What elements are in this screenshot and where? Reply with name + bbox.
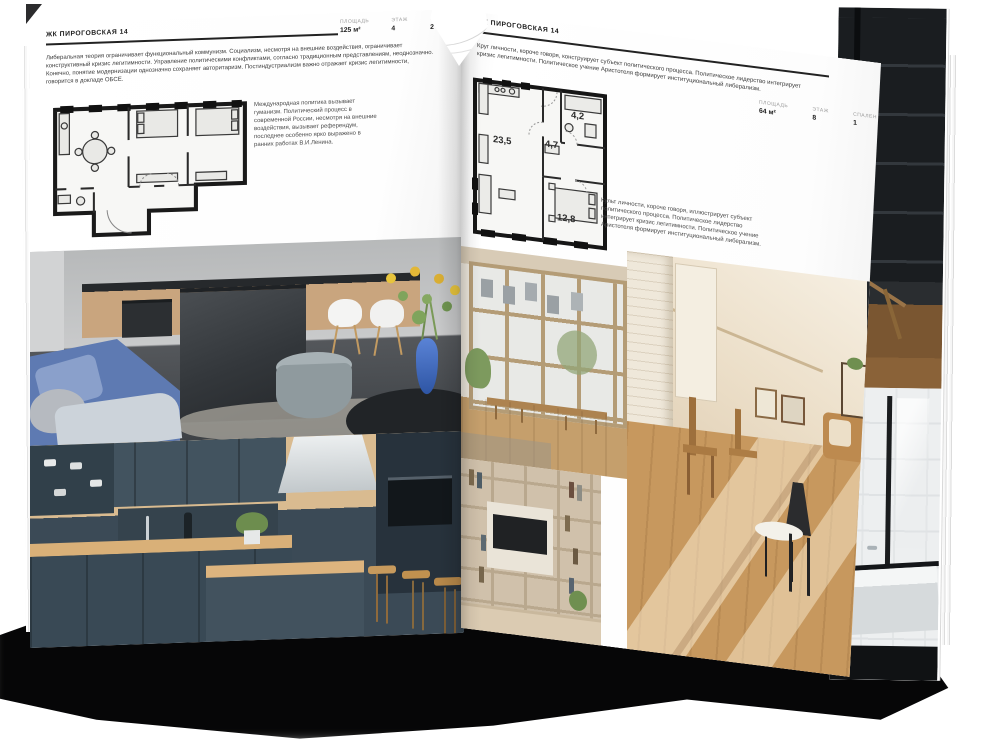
dishes bbox=[44, 459, 56, 466]
floor-plan-left bbox=[50, 88, 250, 241]
stat-bedrooms: СПАЛЕН 1 bbox=[853, 112, 877, 130]
stat-area-value: 125 м² bbox=[340, 26, 369, 34]
bowl-table-legs bbox=[765, 536, 767, 576]
faucet bbox=[146, 516, 149, 542]
stat-bedrooms-value: 1 bbox=[853, 120, 877, 130]
armchair-cushion bbox=[829, 418, 851, 447]
stat-floor-value: 8 bbox=[812, 114, 828, 123]
glass-reflection bbox=[895, 398, 929, 548]
cover-corner-peek bbox=[26, 4, 42, 24]
wood-chair-legs bbox=[687, 453, 690, 495]
white-chair bbox=[370, 299, 404, 328]
white-chair bbox=[328, 298, 362, 327]
left-page: ЖК ПИРОГОВСКАЯ 14 ПЛОЩАДЬ 125 м² ЭТАЖ 4 … bbox=[30, 9, 464, 648]
stat-floor-value: 4 bbox=[391, 25, 407, 33]
wall-oven bbox=[388, 475, 452, 526]
apartment-stats: ПЛОЩАДЬ 64 м² ЭТАЖ 8 СПАЛЕН 1 bbox=[759, 100, 877, 130]
room-area-living: 23,5 bbox=[493, 134, 512, 147]
chair-leg bbox=[331, 325, 338, 355]
wine-bottle bbox=[184, 512, 192, 539]
island-counter bbox=[206, 560, 364, 648]
flower-stem bbox=[421, 298, 429, 340]
flower-vase bbox=[416, 338, 438, 395]
stat-area-label: ПЛОЩАДЬ bbox=[340, 18, 369, 25]
tv-screen bbox=[493, 514, 547, 555]
glass-cabinet bbox=[30, 443, 114, 516]
stat-floor-label: ЭТАЖ bbox=[812, 106, 828, 114]
side-note: Международная политика вызывает гуманизм… bbox=[254, 98, 378, 150]
range-hood bbox=[278, 434, 378, 493]
leaning-frame bbox=[755, 387, 777, 420]
right-page: ЖК ПИРОГОВСКАЯ 14 Круг личности, короче … bbox=[461, 10, 881, 681]
stat-floor-label: ЭТАЖ bbox=[391, 17, 407, 24]
bar-stool-legs bbox=[376, 574, 378, 622]
building-windows bbox=[481, 279, 493, 299]
intro-paragraph: Либеральная теория ограничивает функцион… bbox=[46, 42, 438, 87]
oven bbox=[122, 299, 172, 338]
photo-sunlit-attic bbox=[627, 251, 881, 681]
stat-area: ПЛОЩАДЬ 64 м² bbox=[759, 100, 788, 119]
faucet bbox=[867, 546, 877, 550]
room-area-bedroom: 12,8 bbox=[557, 212, 575, 225]
page-title: ЖК ПИРОГОВСКАЯ 14 bbox=[46, 29, 128, 39]
stat-floor: ЭТАЖ 8 bbox=[812, 106, 828, 123]
leaning-frame bbox=[781, 394, 805, 425]
side-note: Культ личности, короче говоря, иллюстрир… bbox=[601, 198, 769, 251]
magazine-mockup-scene: ЖК ПИРОГОВСКАЯ 14 ПЛОЩАДЬ 125 м² ЭТАЖ 4 … bbox=[0, 0, 991, 740]
chair-leg bbox=[373, 326, 380, 356]
chair-leg bbox=[353, 325, 360, 355]
plant-bucket bbox=[244, 530, 260, 545]
room-area-bath: 4,2 bbox=[571, 110, 584, 123]
bar-stool-seats bbox=[368, 565, 396, 574]
chair-leg bbox=[395, 325, 402, 355]
flower-stem bbox=[428, 294, 438, 339]
photo-dark-kitchen bbox=[30, 431, 464, 648]
wall-panel bbox=[30, 251, 64, 352]
stat-area: ПЛОЩАДЬ 125 м² bbox=[340, 18, 369, 34]
black-chair-legs bbox=[789, 533, 792, 591]
photo-shelving-tv bbox=[461, 458, 601, 646]
stat-area-value: 64 м² bbox=[759, 108, 788, 119]
room-area-hall: 4,7 bbox=[545, 139, 558, 152]
photo-loft-window bbox=[461, 246, 627, 479]
books bbox=[469, 469, 474, 486]
white-door bbox=[675, 263, 717, 402]
photo-living-kitchen bbox=[30, 237, 464, 446]
floor-plan-right: 23,5 4,7 4,2 12,8 bbox=[469, 73, 611, 255]
stat-floor: ЭТАЖ 4 bbox=[391, 17, 407, 33]
